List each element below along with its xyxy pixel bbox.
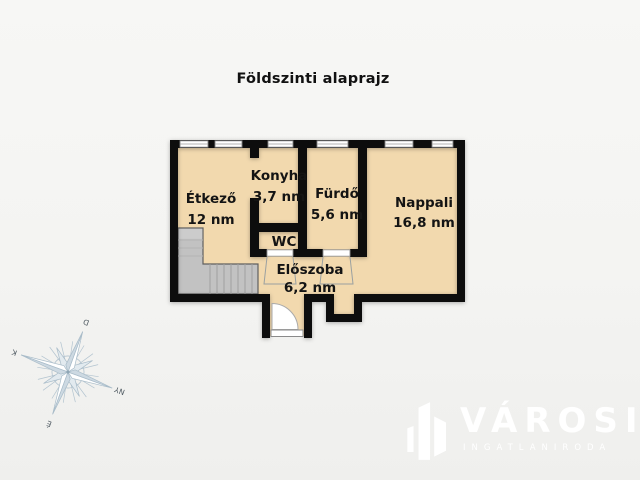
compass-label-east: K bbox=[10, 347, 19, 358]
room-label-konyha: Konyha bbox=[251, 168, 308, 184]
wall-segment bbox=[250, 249, 267, 257]
wall-segment bbox=[170, 294, 270, 302]
building-bar-tall bbox=[419, 402, 431, 460]
entry-door-sill bbox=[271, 330, 303, 337]
stair-top-landing bbox=[179, 229, 203, 239]
room-label-furdo: Fürdő bbox=[315, 186, 359, 202]
wall-segment bbox=[304, 294, 312, 338]
room-area-furdo: 5,6 nm bbox=[311, 207, 363, 223]
room-label-wc: WC bbox=[272, 234, 297, 250]
compass-label-west: NY bbox=[113, 385, 126, 397]
wall-segment bbox=[262, 294, 270, 338]
door-opening-bathroom bbox=[323, 250, 350, 256]
building-bar-small bbox=[407, 426, 413, 452]
compass-main-points bbox=[6, 314, 127, 430]
room-area-eloszoba: 6,2 nm bbox=[284, 280, 336, 296]
brand-logo: VÁROSI INGATLANIRODA bbox=[400, 394, 635, 472]
room-area-etkezo: 12 nm bbox=[187, 212, 234, 228]
compass-label-north: É bbox=[45, 419, 53, 429]
wall-segment bbox=[326, 314, 362, 322]
floor-areas bbox=[172, 142, 463, 336]
brand-name: VÁROSI bbox=[460, 404, 640, 438]
compass-label-south: D bbox=[82, 317, 91, 328]
room-label-eloszoba: Előszoba bbox=[276, 262, 343, 278]
wall-segment bbox=[362, 294, 465, 302]
building-shapes bbox=[407, 402, 446, 460]
page-title: Földszinti alaprajz bbox=[236, 71, 389, 87]
room-label-nappali: Nappali bbox=[395, 195, 453, 211]
brand-subtitle: INGATLANIRODA bbox=[463, 443, 611, 453]
wall-segment bbox=[170, 140, 178, 302]
floor-bay bbox=[330, 296, 358, 316]
wall-segment bbox=[457, 140, 465, 302]
wall-segment bbox=[250, 144, 259, 158]
room-label-etkezo: Étkező bbox=[186, 190, 237, 207]
wall-segment bbox=[293, 249, 323, 257]
wall-segment bbox=[350, 249, 367, 257]
door-opening-wc bbox=[267, 250, 293, 256]
building-bar-mid bbox=[434, 417, 446, 457]
compass-rose: É D K NY bbox=[0, 297, 144, 448]
building-icon bbox=[405, 400, 451, 462]
wall-segment bbox=[358, 144, 367, 257]
room-area-konyha: 3,7 nm bbox=[253, 189, 305, 205]
room-area-nappali: 16,8 nm bbox=[393, 215, 455, 231]
floorplan-page: Földszinti alaprajz bbox=[0, 0, 640, 480]
